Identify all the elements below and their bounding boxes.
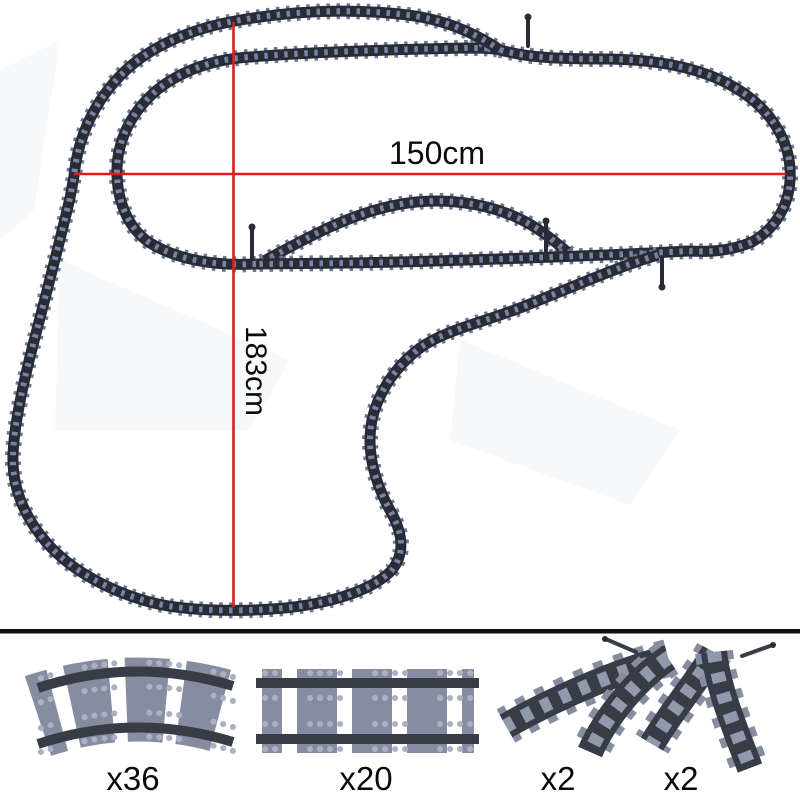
background-shade-shape	[0, 40, 60, 240]
background-shading	[0, 40, 680, 505]
switch-lever	[608, 640, 636, 652]
switch-lever	[602, 636, 608, 642]
switch-lever	[525, 14, 532, 47]
parts-legend: x36 x20 x2	[38, 636, 776, 797]
legend-count-label: x2	[664, 760, 699, 797]
legend-count-label: x20	[339, 760, 392, 797]
legend-item-curved-track: x36	[38, 662, 233, 797]
switch-lever	[249, 224, 256, 259]
legend-item-switch-track-left: x2	[506, 636, 668, 797]
switch-lever	[742, 646, 770, 656]
track-layout-figure: 150cm 183cm x36 x20	[0, 0, 800, 800]
legend-item-straight-track: x20	[256, 673, 479, 797]
legend-count-label: x2	[541, 760, 576, 797]
background-shade-shape	[450, 340, 680, 505]
height-dimension-label: 183cm	[239, 326, 272, 416]
switch-lever	[770, 642, 776, 648]
width-dimension-label: 150cm	[389, 135, 485, 171]
legend-count-label: x36	[106, 760, 159, 797]
product-image: 150cm 183cm x36 x20	[0, 0, 800, 800]
section-divider	[0, 629, 800, 634]
part-ties	[38, 699, 233, 716]
